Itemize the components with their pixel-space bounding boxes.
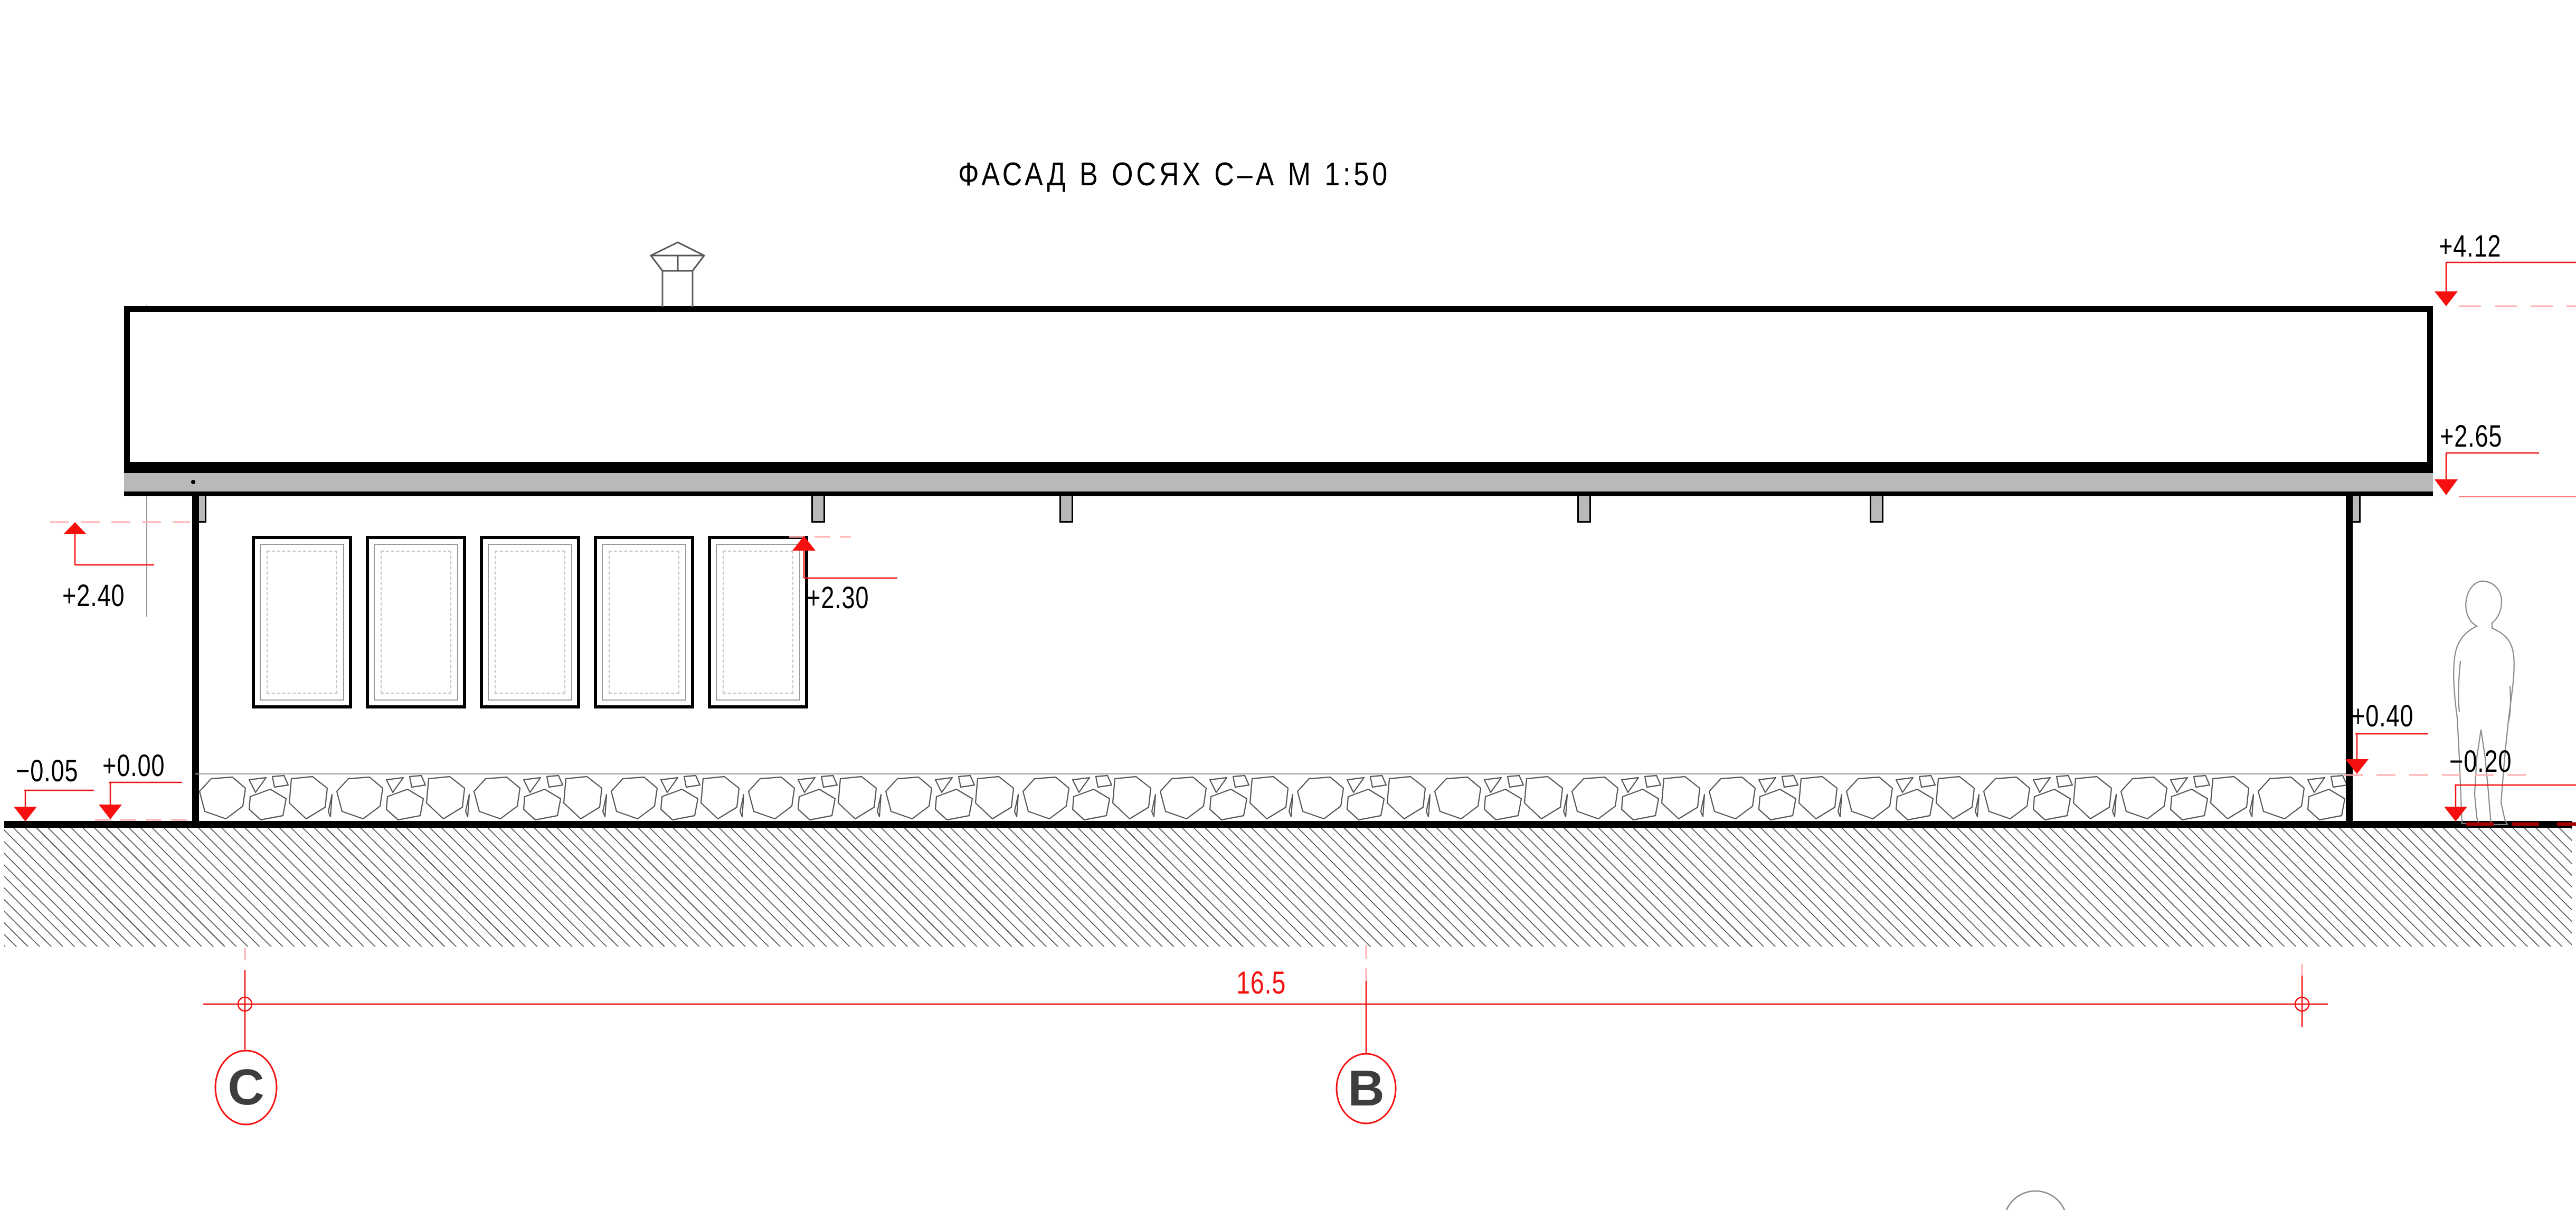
elevation-marker-eave-bottom xyxy=(2435,453,2576,497)
label-window-head: +2.30 xyxy=(807,583,869,613)
annotation-overlay xyxy=(0,0,2576,1210)
roof-vent xyxy=(651,242,704,307)
axis-label-c: C xyxy=(216,1051,276,1124)
elevation-marker-window-head xyxy=(789,536,897,578)
label-plinth-top: +0.40 xyxy=(2351,701,2413,732)
facade-elevation-drawing: ФАСАД В ОСЯХ С–А М 1:50 xyxy=(0,0,2576,1210)
label-ground-right: −0.20 xyxy=(2449,746,2512,777)
elevation-marker-ground-right xyxy=(2444,785,2576,824)
axis-bubbles xyxy=(215,1051,1396,1124)
label-canopy: +2.40 xyxy=(62,581,125,611)
human-figure xyxy=(2454,581,2514,825)
elevation-marker-roof-top xyxy=(2435,262,2576,306)
label-ground-left: −0.05 xyxy=(16,756,78,787)
axis-label-b: B xyxy=(1337,1054,1396,1123)
partial-detail-circle xyxy=(2004,1191,2067,1210)
elevation-marker-canopy xyxy=(50,522,190,565)
label-eave-bottom: +2.65 xyxy=(2440,421,2502,452)
label-floor: +0.00 xyxy=(102,751,165,781)
elevation-marker-ground-left xyxy=(14,790,94,821)
elevation-marker-floor xyxy=(95,782,195,820)
label-roof-top: +4.12 xyxy=(2439,231,2501,262)
dimension-text: 16.5 xyxy=(1236,967,1286,999)
